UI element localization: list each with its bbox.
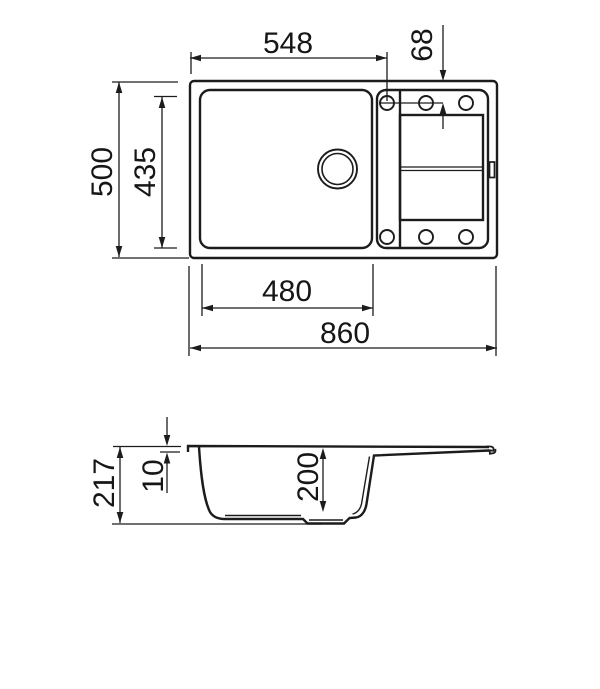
arrowhead [159, 237, 166, 248]
faucet-hole [459, 230, 473, 244]
dim-label-480: 480 [262, 275, 312, 308]
arrowhead [190, 345, 201, 352]
sink-dimension-diagram: 548 68 500 435 480 860 [0, 0, 600, 689]
drain-hole-inner [322, 154, 353, 185]
dim-label-548: 548 [263, 27, 313, 60]
arrowhead [116, 246, 123, 257]
main-bowl [200, 90, 372, 248]
dim-label-500: 500 [86, 147, 119, 197]
rim-top-line [188, 446, 489, 452]
dim-label-200: 200 [292, 452, 325, 502]
dimension-10: 10 [137, 417, 180, 493]
arrowhead [116, 82, 123, 93]
dimension-200: 200 [292, 448, 326, 512]
arrowhead [202, 305, 213, 312]
dim-label-10: 10 [137, 459, 170, 492]
dimension-435: 435 [129, 97, 177, 249]
arrowhead [376, 55, 387, 62]
faucet-hole [419, 230, 433, 244]
drawing-svg: 548 68 500 435 480 860 [0, 0, 600, 689]
arrowhead [164, 435, 171, 446]
dim-label-68: 68 [406, 28, 439, 61]
arrowhead [159, 97, 166, 108]
dimension-480: 480 [202, 264, 373, 316]
dim-label-217: 217 [88, 458, 121, 508]
dimension-68: 68 [406, 25, 446, 129]
arrowhead [117, 447, 124, 458]
bowl-profile [199, 447, 489, 524]
drain-hole-outer [318, 150, 357, 189]
top-view [190, 81, 497, 258]
arrowhead [117, 512, 124, 523]
arrowhead [362, 305, 373, 312]
dim-label-860: 860 [320, 317, 370, 350]
faucet-hole [459, 96, 473, 110]
edge-notch [490, 162, 495, 178]
drainer-section [377, 90, 488, 248]
faucet-hole [380, 230, 394, 244]
sink-outline [190, 81, 497, 258]
arrowhead [440, 103, 447, 114]
dim-label-435: 435 [129, 147, 162, 197]
dimension-860: 860 [189, 266, 497, 356]
arrowhead [440, 70, 447, 81]
